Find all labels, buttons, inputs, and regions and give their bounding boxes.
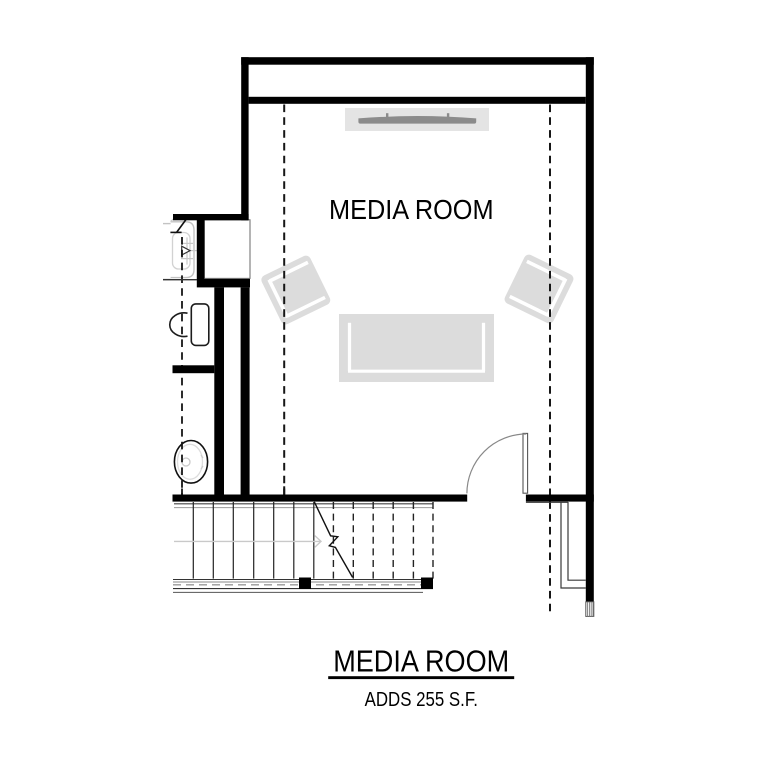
svg-text:ADDS 255 S.F.: ADDS 255 S.F. bbox=[365, 689, 478, 711]
svg-text:MEDIA ROOM: MEDIA ROOM bbox=[329, 194, 494, 225]
svg-text:MEDIA ROOM: MEDIA ROOM bbox=[333, 644, 509, 678]
